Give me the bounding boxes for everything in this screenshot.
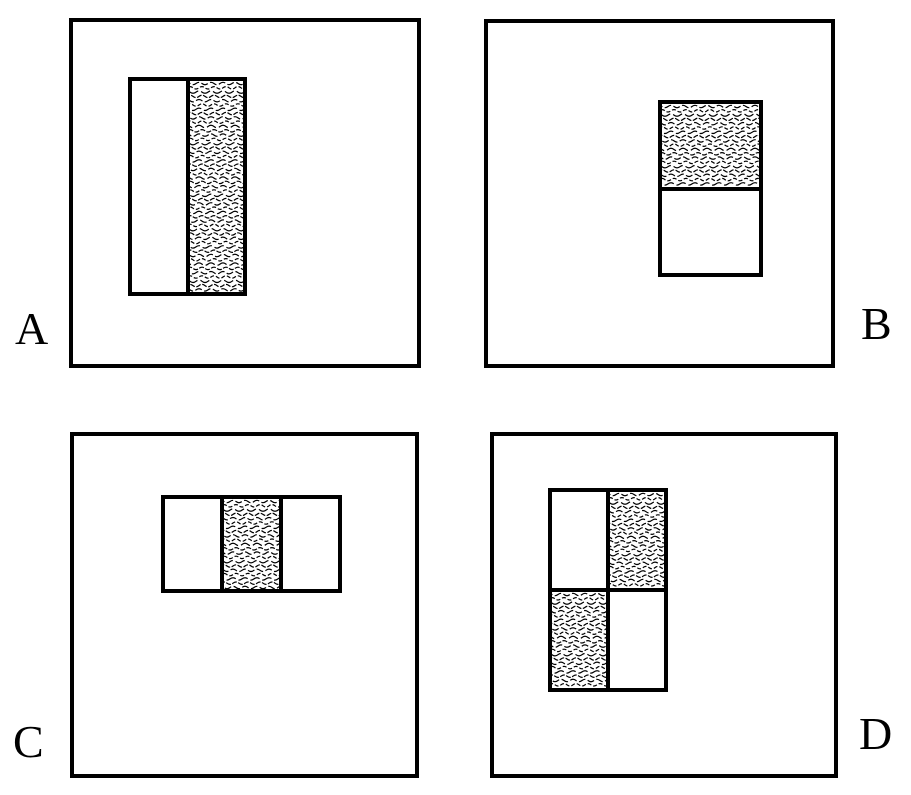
panel-label-c: C xyxy=(13,719,44,765)
divided-rectangle-d xyxy=(548,488,668,692)
rect-cell xyxy=(283,499,338,589)
figure-canvas: A B C D xyxy=(0,0,911,795)
stipple-texture xyxy=(190,81,244,292)
stipple-texture xyxy=(610,492,664,588)
rect-cell xyxy=(662,104,759,187)
rect-cell xyxy=(610,592,664,688)
panel-label-a: A xyxy=(15,306,48,352)
rect-cell xyxy=(662,191,759,274)
rect-cell xyxy=(165,499,220,589)
stipple-texture xyxy=(224,499,279,589)
panel-label-d: D xyxy=(859,711,892,757)
outer-square-a xyxy=(69,18,421,368)
rect-cell xyxy=(224,499,279,589)
divided-rectangle-a xyxy=(128,77,247,296)
stipple-texture xyxy=(552,592,606,688)
rect-cell xyxy=(610,492,664,588)
rect-cell xyxy=(190,81,244,292)
divided-rectangle-c xyxy=(161,495,342,593)
stipple-texture xyxy=(662,104,759,187)
rect-cell xyxy=(132,81,186,292)
panel-label-b: B xyxy=(861,301,892,347)
outer-square-c xyxy=(70,432,419,778)
rect-cell xyxy=(552,592,606,688)
outer-square-d xyxy=(490,432,838,778)
divided-rectangle-b xyxy=(658,100,763,277)
outer-square-b xyxy=(484,19,835,368)
rect-cell xyxy=(552,492,606,588)
